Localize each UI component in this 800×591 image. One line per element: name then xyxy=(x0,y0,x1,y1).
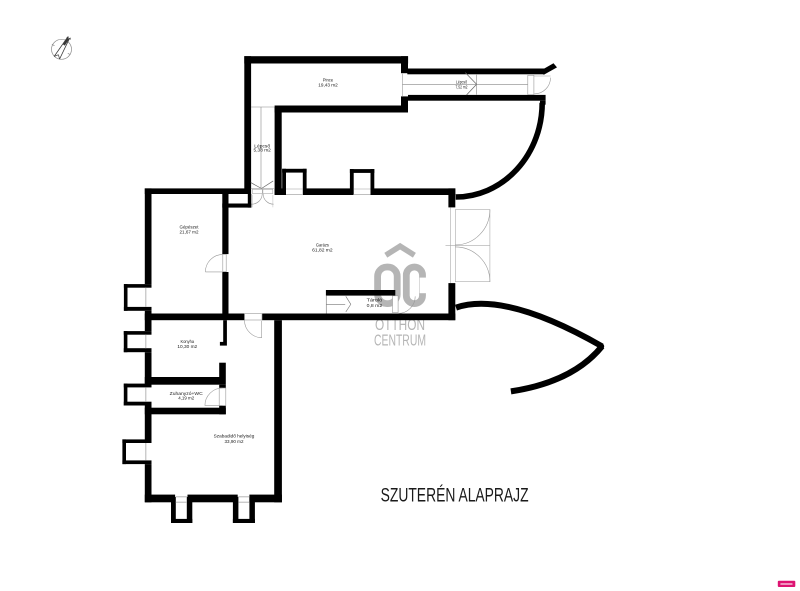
svg-text:Zuhanyzó+WC: Zuhanyzó+WC xyxy=(170,391,204,396)
svg-text:33,90 m2: 33,90 m2 xyxy=(225,439,244,444)
svg-text:Szabadidő helyiség: Szabadidő helyiség xyxy=(214,434,255,439)
svg-text:Lépcső: Lépcső xyxy=(456,79,467,84)
svg-text:10,30 m2: 10,30 m2 xyxy=(177,344,197,349)
svg-text:Konyha: Konyha xyxy=(181,339,195,344)
svg-text:Pince: Pince xyxy=(323,78,334,83)
svg-text:Tároló: Tároló xyxy=(367,297,383,302)
svg-text:61,82 m2: 61,82 m2 xyxy=(312,248,333,253)
svg-text:5,38 m2: 5,38 m2 xyxy=(254,148,272,153)
svg-text:Garázs: Garázs xyxy=(316,243,330,248)
svg-text:Gépészet: Gépészet xyxy=(180,224,200,229)
svg-text:4,19 m2: 4,19 m2 xyxy=(178,396,194,401)
svg-text:SZUTERÉN ALAPRAJZ: SZUTERÉN ALAPRAJZ xyxy=(381,486,529,507)
svg-text:CENTRUM: CENTRUM xyxy=(374,333,426,350)
svg-text:21,67 m2: 21,67 m2 xyxy=(180,229,199,234)
svg-text:0,8 m2: 0,8 m2 xyxy=(367,303,383,308)
svg-text:19,43 m2: 19,43 m2 xyxy=(318,83,338,88)
svg-text:7,52 m2: 7,52 m2 xyxy=(456,84,468,89)
